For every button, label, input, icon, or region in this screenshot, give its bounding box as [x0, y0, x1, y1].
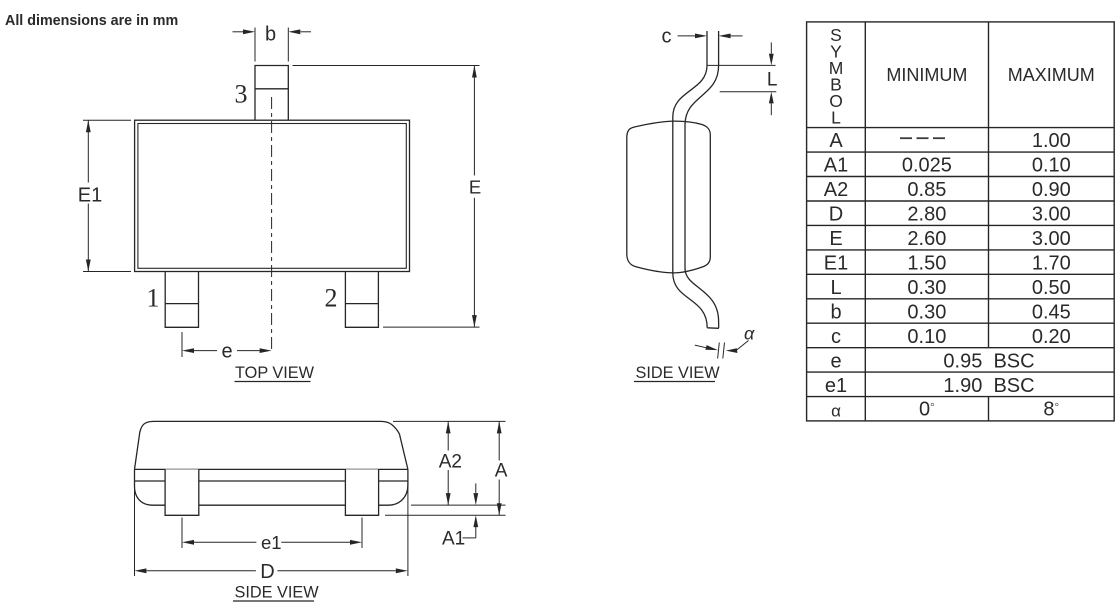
svg-text:0.30: 0.30 — [907, 302, 946, 324]
svg-text:0.85: 0.85 — [907, 179, 946, 201]
svg-text:b: b — [265, 24, 276, 46]
svg-text:α: α — [744, 324, 755, 344]
svg-text:MAXIMUM: MAXIMUM — [1008, 65, 1095, 85]
svg-text:A1: A1 — [824, 155, 848, 177]
svg-text:SIDE VIEW: SIDE VIEW — [636, 364, 721, 382]
svg-text:A2: A2 — [439, 451, 462, 472]
svg-text:TOP VIEW: TOP VIEW — [235, 364, 315, 382]
svg-text:A: A — [829, 130, 843, 152]
svg-text:0.10: 0.10 — [1032, 155, 1071, 177]
svg-text:e1: e1 — [261, 532, 282, 553]
svg-text:2.60: 2.60 — [907, 228, 946, 250]
svg-text:0.50: 0.50 — [1032, 277, 1071, 299]
svg-text:0.20: 0.20 — [1032, 326, 1071, 348]
svg-text:0.95 BSC: 0.95 BSC — [943, 351, 1034, 373]
svg-text:L: L — [767, 70, 778, 91]
svg-text:1.70: 1.70 — [1032, 253, 1071, 275]
svg-text:0.30: 0.30 — [907, 277, 946, 299]
svg-text:E: E — [829, 228, 842, 250]
svg-text:3: 3 — [235, 80, 248, 109]
svg-text:0.025: 0.025 — [902, 155, 952, 177]
svg-text:SIDE VIEW: SIDE VIEW — [235, 584, 320, 602]
svg-text:A2: A2 — [824, 179, 848, 201]
svg-text:e: e — [222, 341, 233, 363]
svg-text:MINIMUM: MINIMUM — [886, 65, 967, 85]
svg-text:1.90 BSC: 1.90 BSC — [943, 375, 1034, 397]
svg-text:1: 1 — [147, 284, 160, 313]
svg-text:3.00: 3.00 — [1032, 228, 1071, 250]
svg-text:e: e — [830, 351, 841, 373]
svg-text:0.45: 0.45 — [1032, 302, 1071, 324]
svg-text:0.10: 0.10 — [907, 326, 946, 348]
svg-text:All dimensions are in mm: All dimensions are in mm — [5, 13, 178, 29]
svg-text:E1: E1 — [78, 185, 102, 207]
svg-text:b: b — [830, 302, 841, 324]
svg-text:2.80: 2.80 — [907, 204, 946, 226]
svg-text:1.00: 1.00 — [1032, 130, 1071, 152]
svg-text:3.00: 3.00 — [1032, 204, 1071, 226]
svg-text:L: L — [830, 277, 841, 299]
svg-text:e1: e1 — [825, 375, 847, 397]
svg-text:L: L — [831, 108, 841, 128]
svg-text:1.50: 1.50 — [907, 253, 946, 275]
svg-text:D: D — [829, 204, 843, 226]
svg-text:E: E — [469, 177, 481, 198]
svg-text:D: D — [260, 561, 274, 583]
svg-text:E1: E1 — [824, 253, 848, 275]
svg-text:A1: A1 — [442, 528, 465, 549]
svg-text:2: 2 — [325, 284, 338, 313]
svg-text:0.90: 0.90 — [1032, 179, 1071, 201]
svg-text:c: c — [662, 26, 672, 48]
svg-text:A: A — [495, 461, 508, 482]
svg-text:c: c — [831, 326, 841, 348]
svg-text:α: α — [831, 402, 841, 421]
